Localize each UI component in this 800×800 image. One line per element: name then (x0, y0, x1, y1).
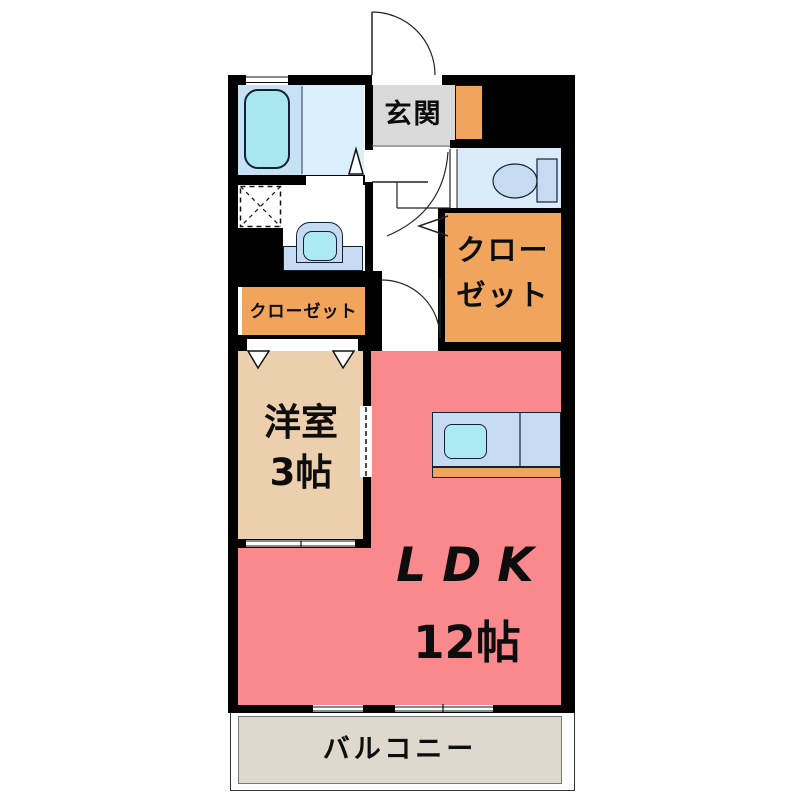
bathroom-fold-door-marker (349, 149, 363, 174)
ldk-label: LDK 12帖 (372, 518, 562, 692)
closet-left-label: クローゼット (242, 302, 365, 323)
floor-plan: 玄関 クロー ゼット クローゼット 洋室 3帖 LDK 12帖 バルコニー (0, 0, 800, 800)
toilet-door-arc (387, 152, 448, 236)
closet-right-label: クロー ゼット (445, 228, 561, 318)
genkan-label: 玄関 (372, 98, 455, 132)
ldk-door-arc (382, 280, 440, 338)
closet-fold-marker-1 (248, 351, 269, 368)
western-room-label: 洋室 3帖 (240, 398, 362, 498)
ldk-name: LDK (372, 538, 562, 594)
entrance-door-arc (372, 12, 435, 75)
closet-door-marker (419, 216, 448, 236)
balcony-label: バルコニー (238, 733, 562, 767)
ldk-size: 12帖 (372, 614, 562, 672)
closet-fold-marker-2 (333, 351, 354, 368)
toilet-tank (537, 159, 557, 202)
toilet-bowl (493, 164, 537, 198)
